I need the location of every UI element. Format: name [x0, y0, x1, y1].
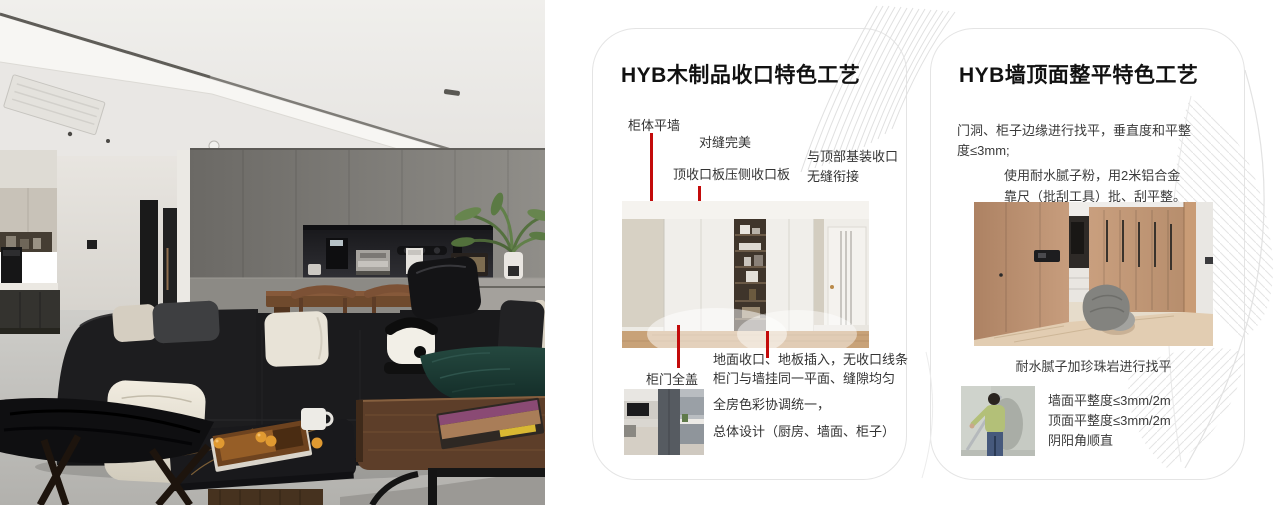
spec-wall-flatness: 墙面平整度≤3mm/2m	[1048, 391, 1171, 411]
wood-wall	[974, 202, 1069, 346]
label-top-board: 顶收口板压侧收口板	[673, 165, 790, 184]
card1-title: HYB木制品收口特色工艺	[621, 59, 860, 89]
kitchen-counter	[0, 283, 58, 290]
dark-door	[140, 200, 158, 310]
label-door-full-cover: 柜门全盖	[646, 370, 698, 389]
white-pillow	[264, 311, 329, 367]
card2-title: HYB墙顶面整平特色工艺	[959, 59, 1198, 89]
worker-head	[988, 393, 1000, 405]
label-top-seamless: 与顶部基装收口 无缝衔接	[807, 147, 898, 187]
label-seam-perfect: 对缝完美	[699, 133, 751, 152]
caption-pearlite: 耐水腻子加珍珠岩进行找平	[974, 357, 1213, 377]
kitchen-base-cabinets	[0, 290, 60, 334]
para-leveling: 门洞、柜子边缘进行找平，垂直度和平整 度≤3mm;	[957, 121, 1191, 161]
wardrobe-render-image	[622, 201, 869, 348]
black-leather-pillow	[406, 255, 483, 321]
label-floor-closing: 地面收口、地板插入，无收口线条 柜门与墙挂同一平面、缝隙均匀	[713, 350, 908, 388]
downlight	[106, 139, 110, 143]
spec-ceiling-flatness: 顶面平整度≤3mm/2m	[1048, 411, 1171, 431]
label-cabinet-flush: 柜体平墙	[628, 116, 680, 135]
living-room-photo	[0, 0, 545, 505]
tv	[627, 403, 649, 416]
annotation-line	[677, 325, 680, 368]
dark-door	[163, 208, 178, 308]
card-wall-leveling: HYB墙顶面整平特色工艺 门洞、柜子边缘进行找平，垂直度和平整 度≤3mm; 使…	[930, 28, 1245, 480]
whole-house-photo	[624, 389, 704, 455]
control-panel	[1034, 250, 1060, 262]
downlight	[68, 132, 72, 136]
card-wood-finishing: HYB木制品收口特色工艺 柜体平墙 对缝完美 顶收口板压侧收口板 与顶部基装收口…	[592, 28, 907, 480]
para-putty: 使用耐水腻子粉，用2米铝合金 靠尺（批刮工具）批、刮平整。	[1004, 165, 1186, 207]
light-switch	[87, 240, 97, 249]
wood-hallway-photo	[974, 202, 1213, 346]
label-color-harmony: 全房色彩协调统一， 总体设计（厨房、墙面、柜子）	[713, 391, 895, 445]
worker-leveling-photo	[961, 386, 1035, 456]
spec-corners-straight: 阴阳角顺直	[1048, 431, 1171, 451]
spec-list: 墙面平整度≤3mm/2m 顶面平整度≤3mm/2m 阴阳角顺直	[1048, 391, 1171, 451]
wall-pillar	[177, 150, 191, 310]
